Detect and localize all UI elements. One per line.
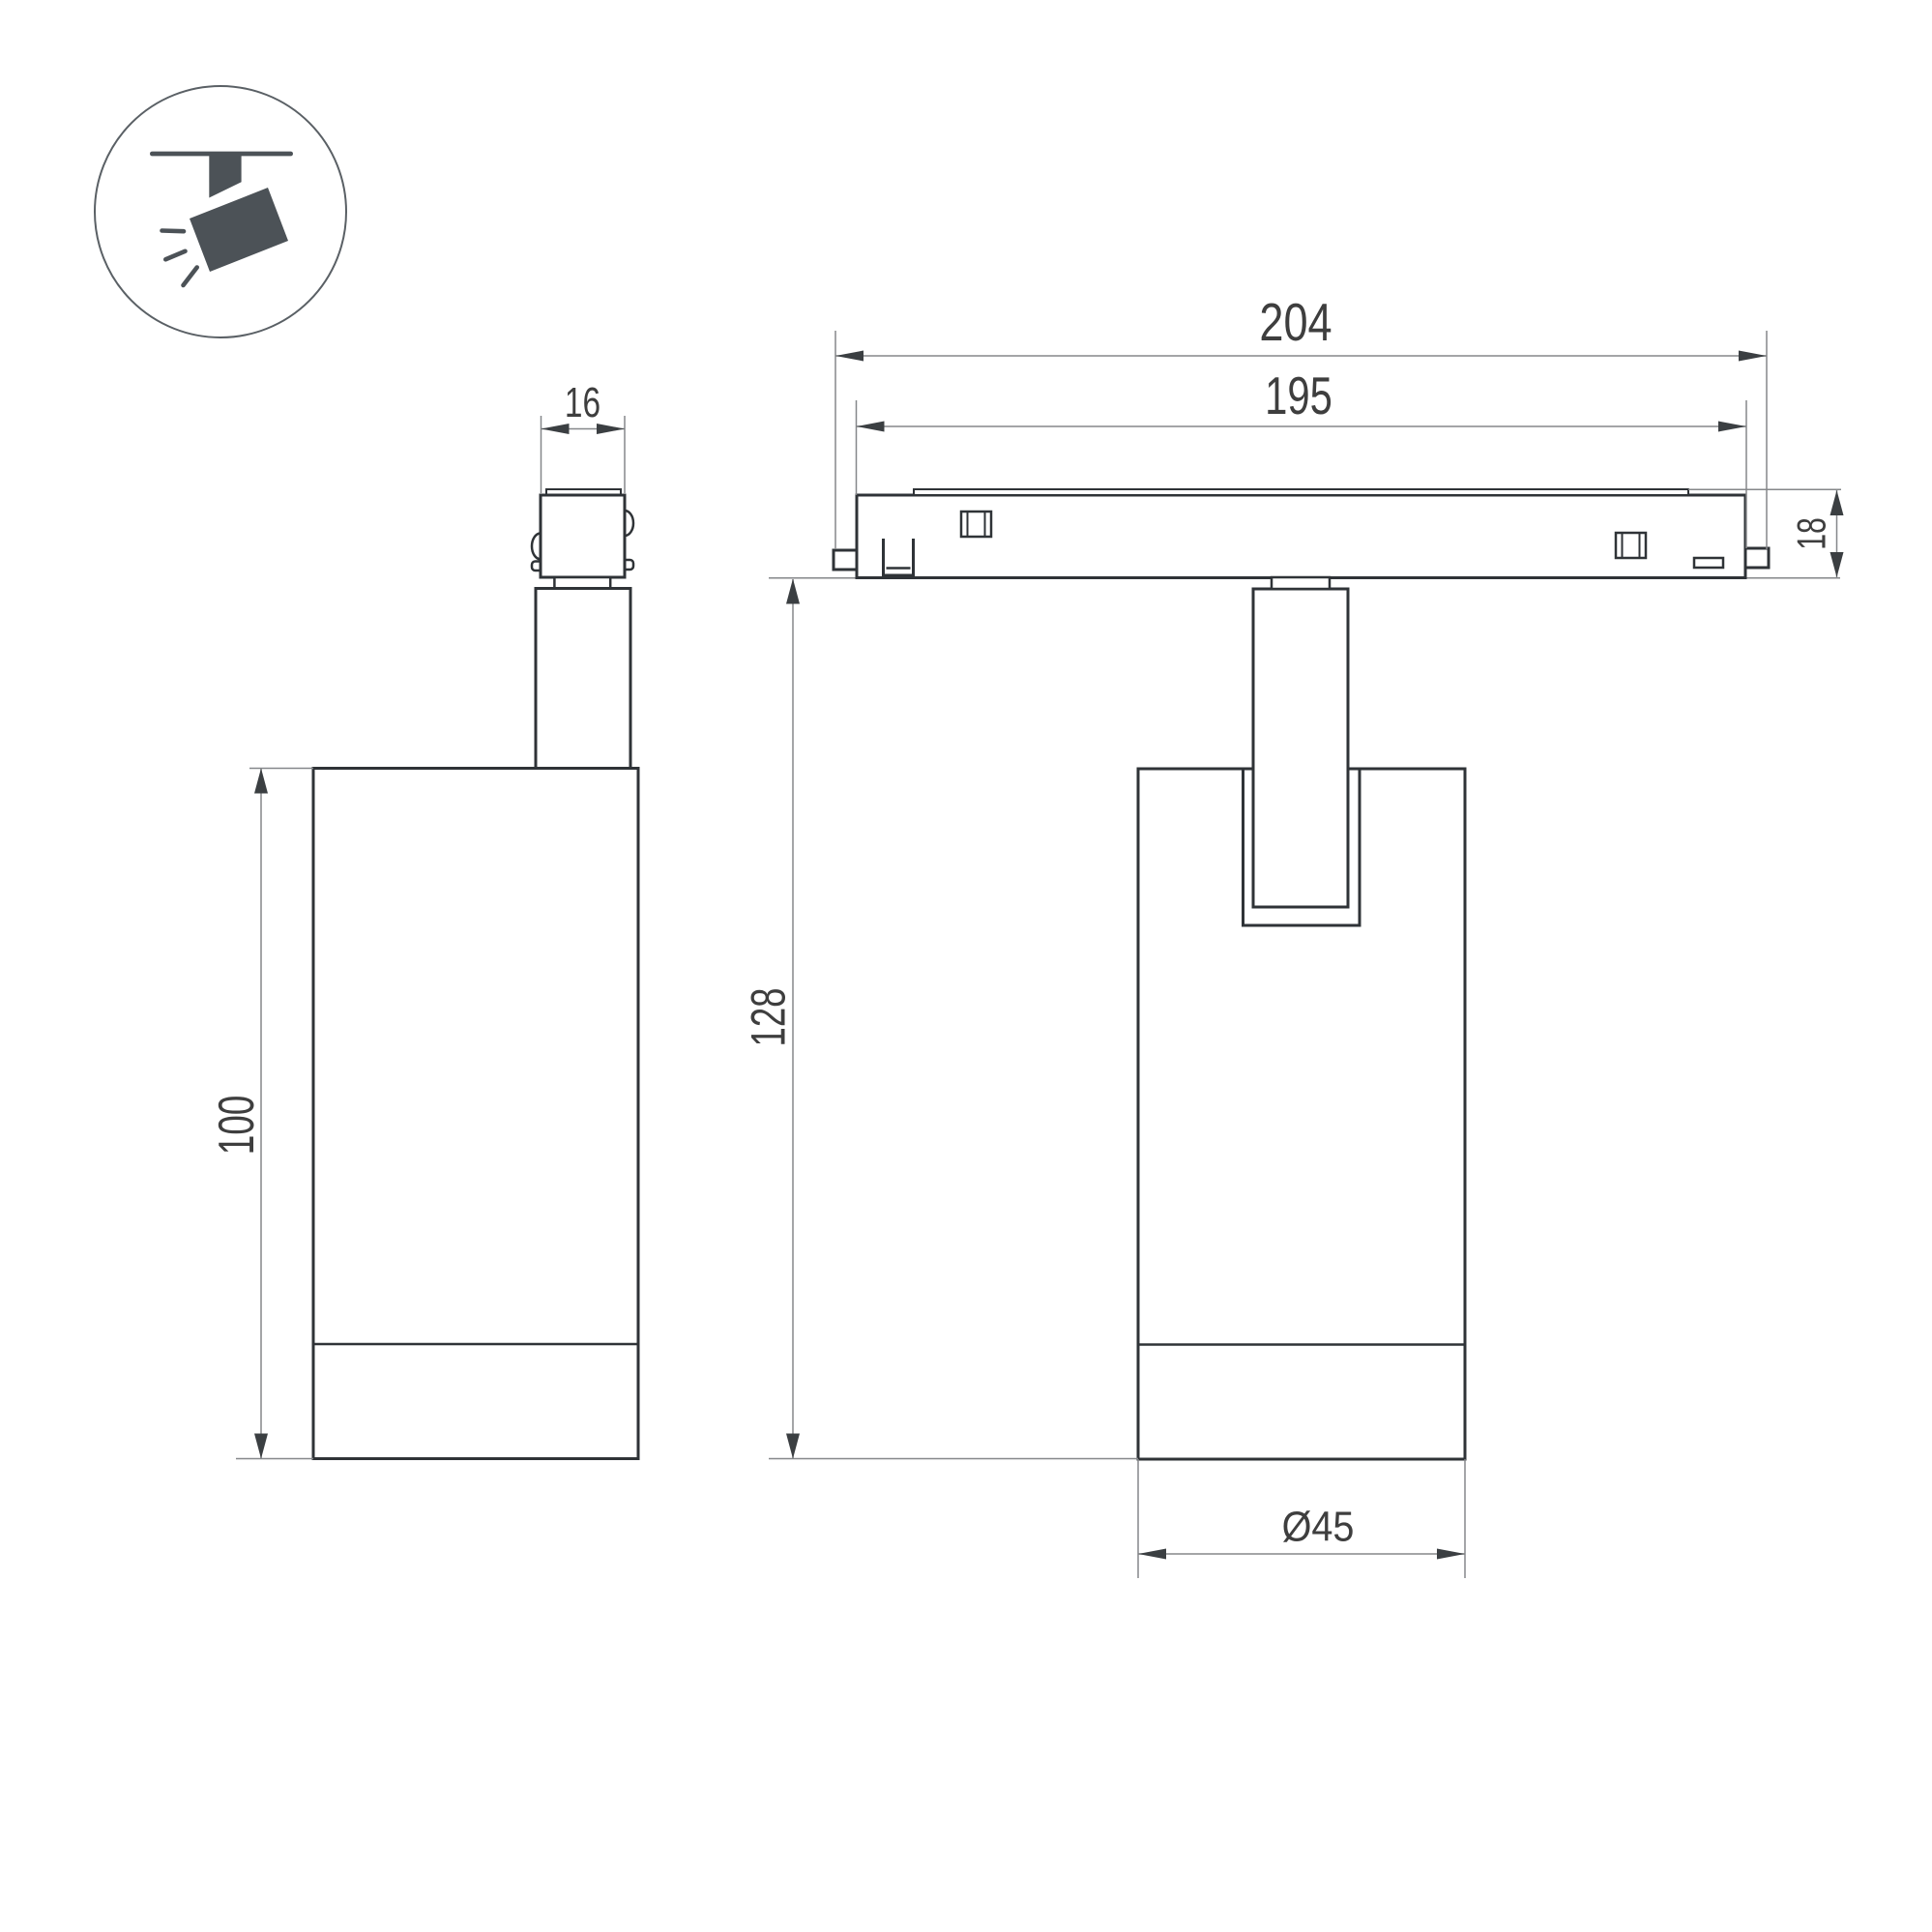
svg-text:Ø45: Ø45 bbox=[1282, 1503, 1355, 1550]
svg-text:100: 100 bbox=[208, 1096, 265, 1156]
svg-text:204: 204 bbox=[1259, 292, 1332, 352]
svg-text:16: 16 bbox=[565, 380, 600, 426]
svg-text:195: 195 bbox=[1265, 367, 1332, 426]
svg-text:18: 18 bbox=[1789, 517, 1834, 550]
svg-text:128: 128 bbox=[742, 988, 796, 1047]
